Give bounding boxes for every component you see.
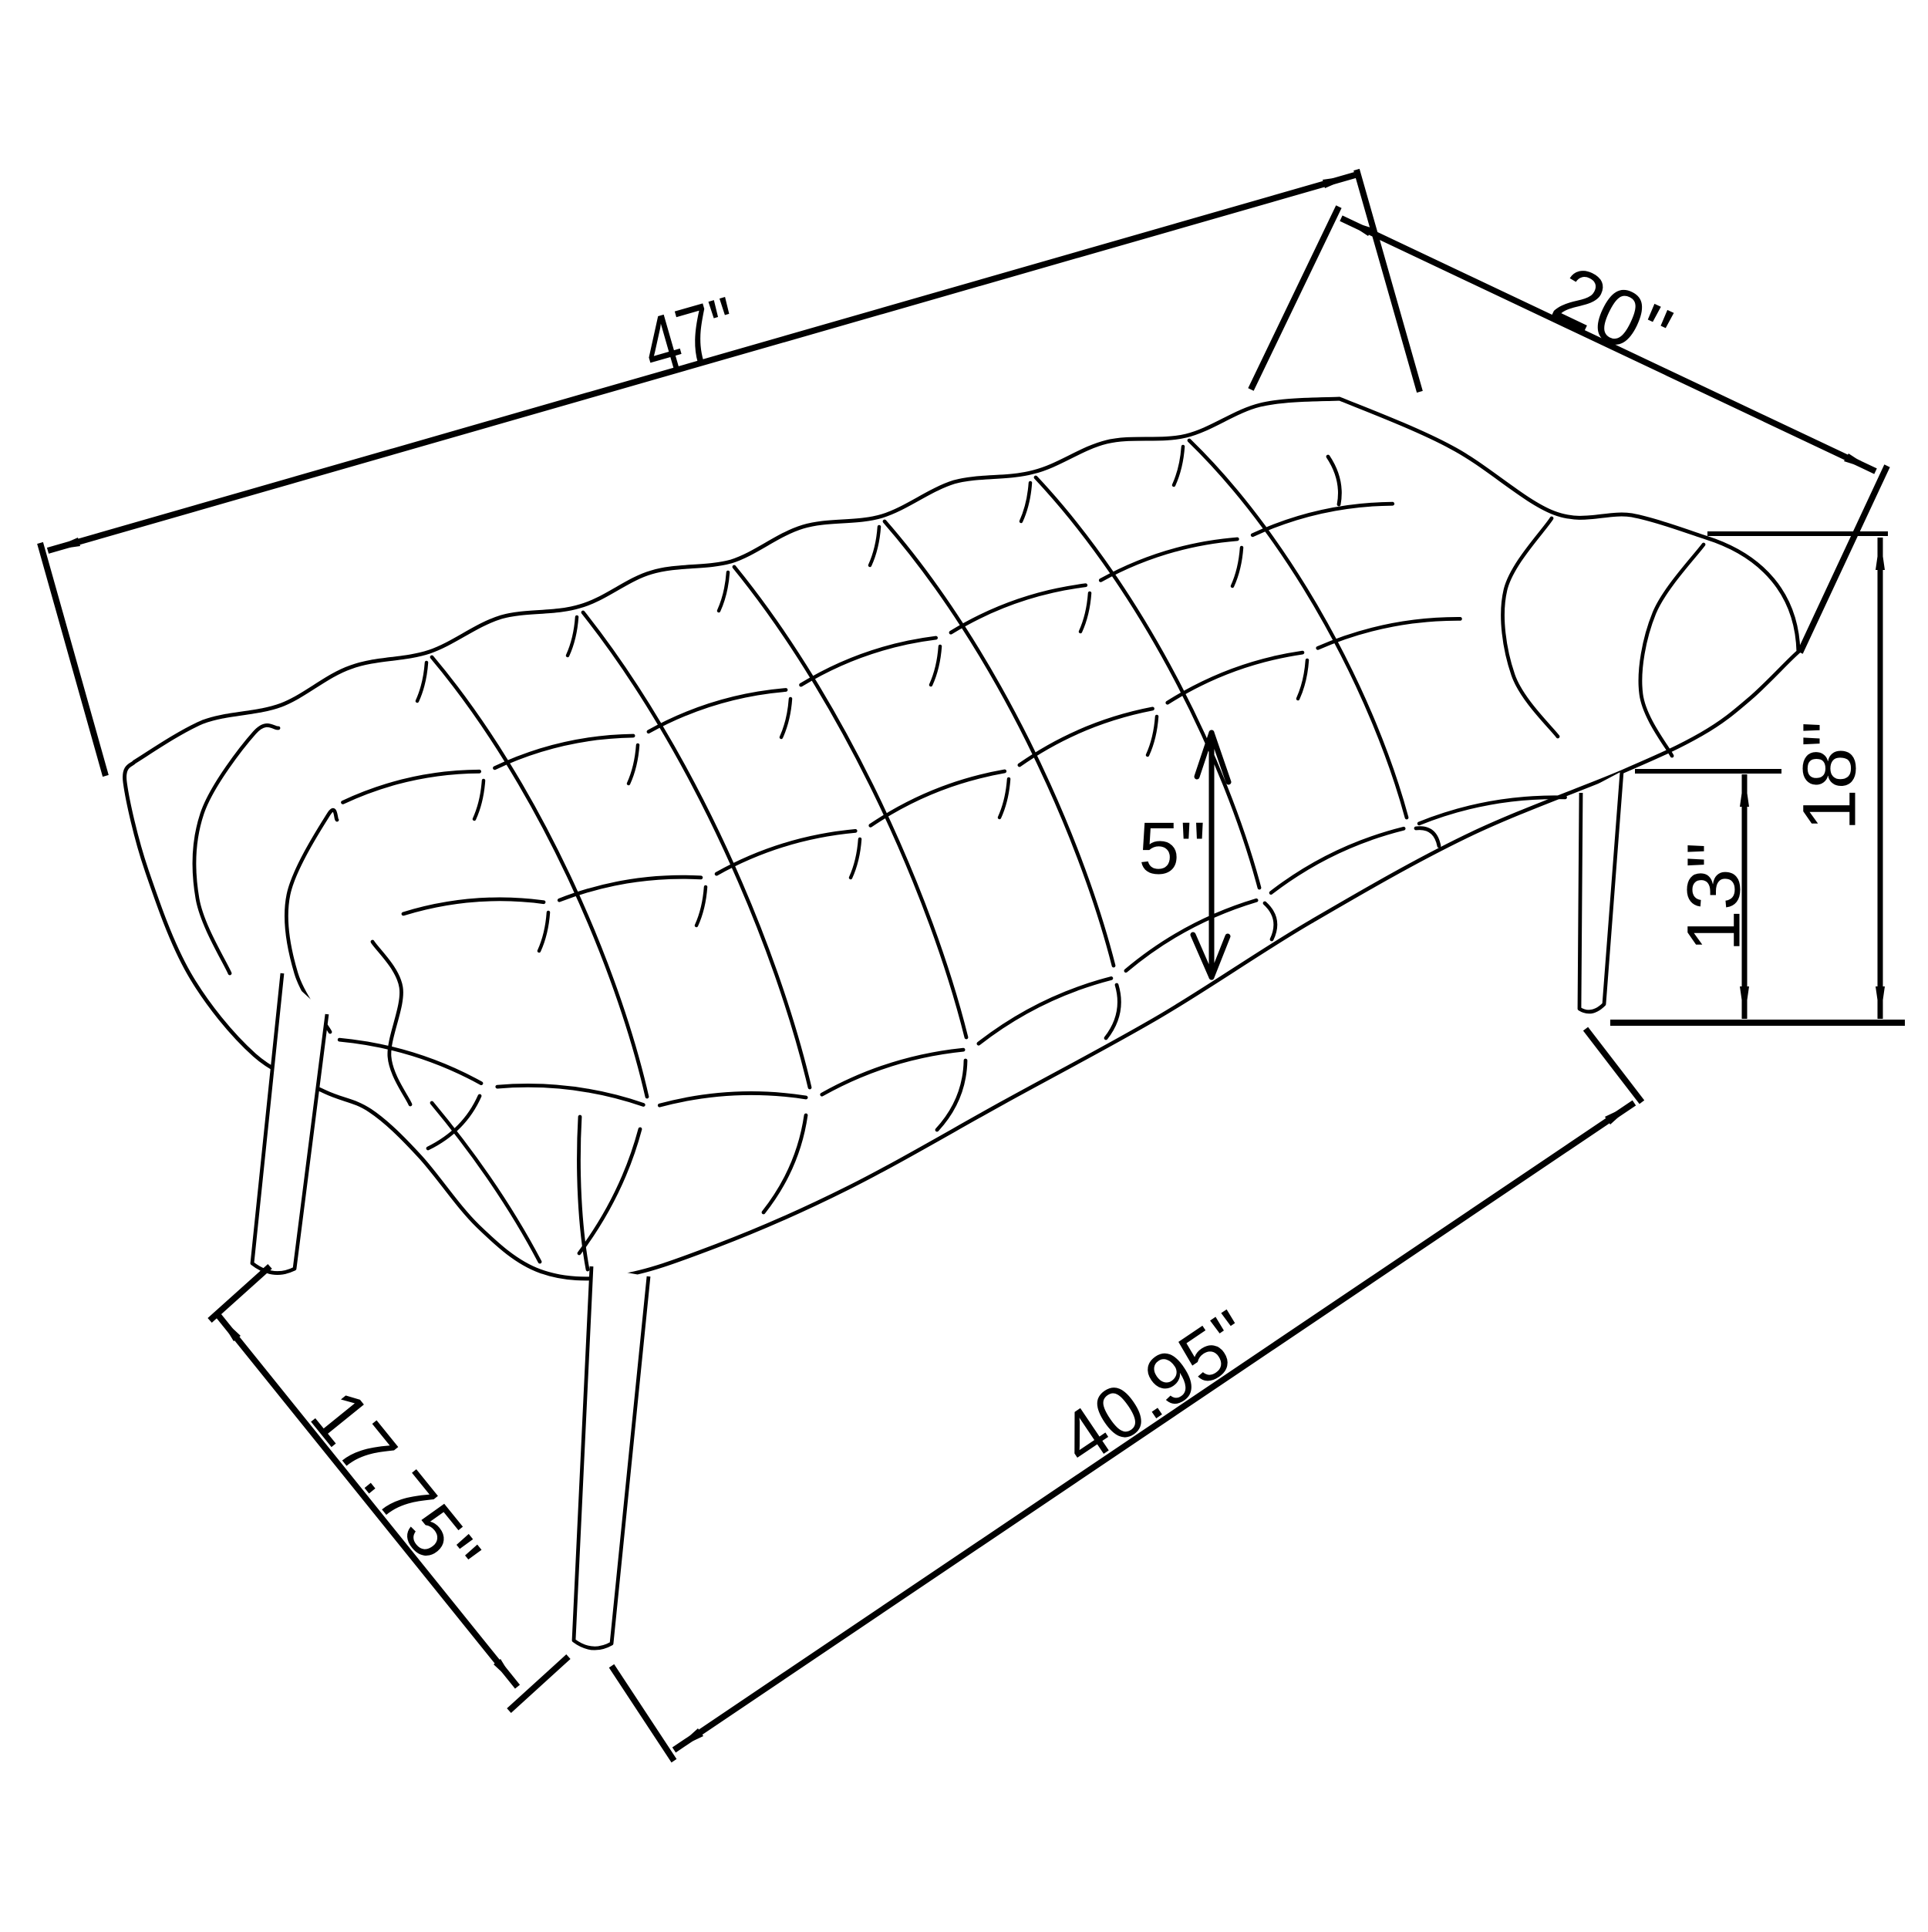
svg-text:13": 13" bbox=[1672, 842, 1756, 952]
svg-text:18": 18" bbox=[1788, 721, 1872, 831]
svg-text:5": 5" bbox=[1138, 808, 1205, 890]
